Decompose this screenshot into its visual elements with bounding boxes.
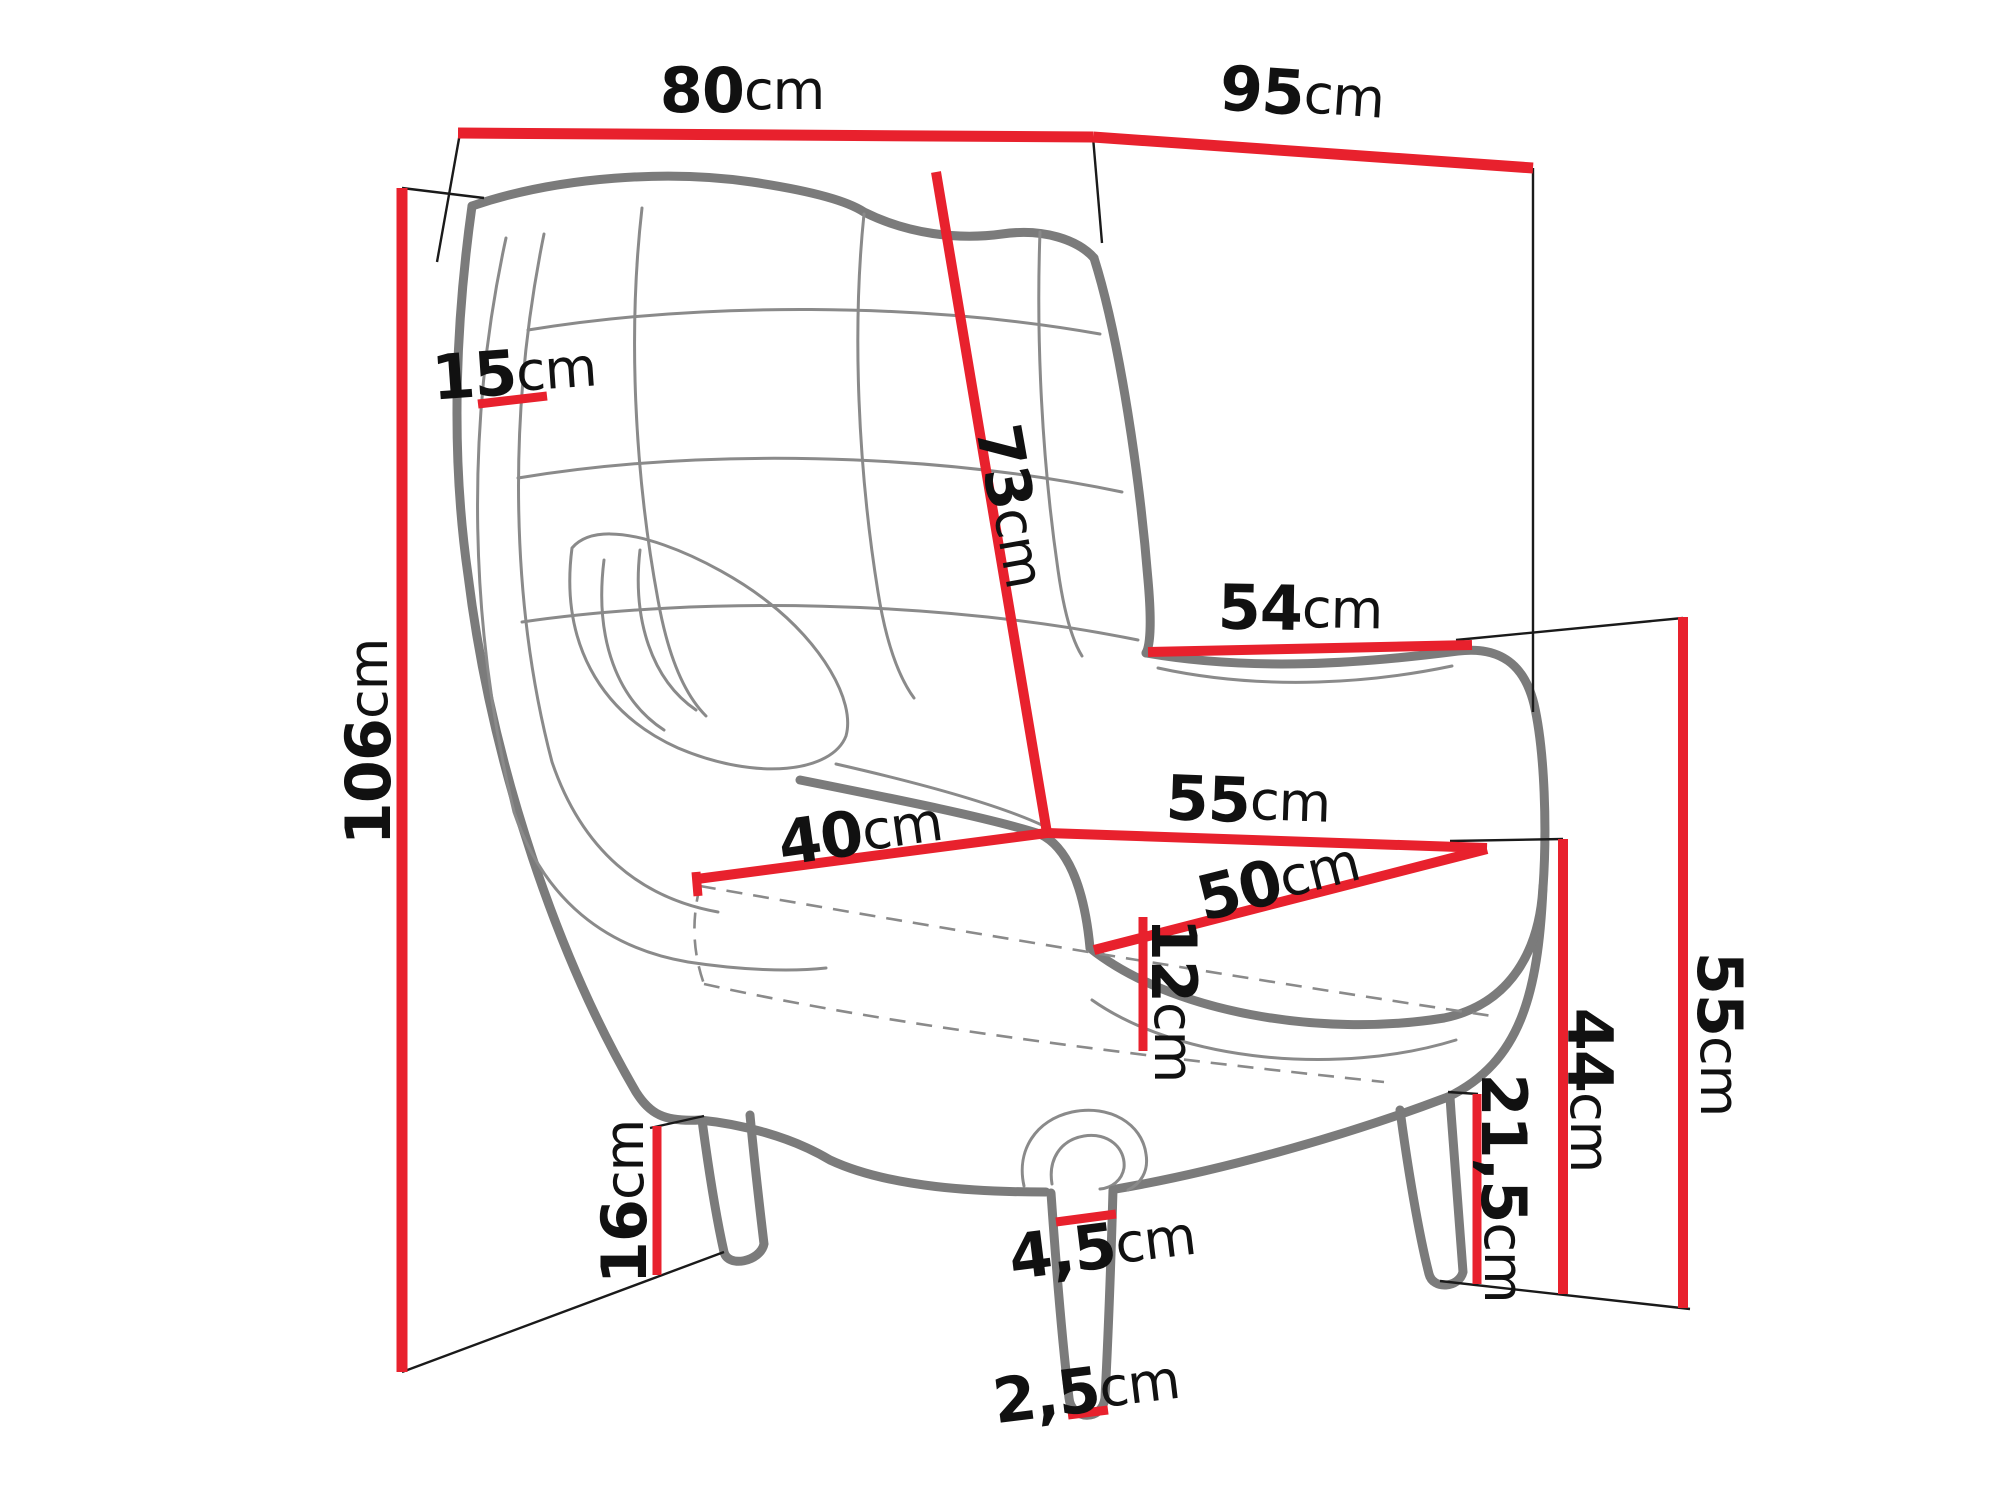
label-armrest-inner-length: 40cm [773, 784, 946, 879]
backrest-inner-seam-2 [519, 234, 718, 912]
extension-top-corner [1093, 137, 1102, 243]
leg-mount-swirl-inner [1051, 1135, 1124, 1189]
tufting-seam-horizontal-1 [528, 309, 1100, 334]
chair-outline-top [472, 176, 1094, 258]
extension-armrest-height-top [1456, 618, 1683, 640]
label-armrest-depth: 54cm [1217, 570, 1383, 646]
pillow-crease-2 [638, 550, 696, 710]
armrest-inner-seam [1158, 666, 1452, 682]
label-front-leg-top-width: 4,5cm [1005, 1198, 1200, 1293]
rear-right-leg [1400, 1097, 1463, 1285]
label-backrest-height: 73cm [962, 419, 1062, 594]
label-seat-width: 55cm [1164, 761, 1331, 840]
label-cushion-thickness: 12cm [1138, 918, 1211, 1083]
extension-total-height-top [402, 188, 484, 198]
chair-outline-backrest-right [1094, 258, 1150, 653]
label-backrest-thickness: 15cm [429, 330, 598, 414]
pillow-outline [570, 534, 848, 769]
label-base-clearance-height: 21,5cm [1468, 1073, 1541, 1302]
leg-mount-swirl-outer [1022, 1110, 1146, 1190]
label-rear-leg-height: 16cm [588, 1120, 661, 1285]
armchair-dimensions-diagram: 80cm 95cm 106cm 15cm 73cm 54cm 55cm 50cm… [0, 0, 2000, 1500]
floor-line-left [402, 1252, 724, 1372]
label-seat-height: 44cm [1554, 1008, 1627, 1173]
rear-left-leg [702, 1115, 764, 1261]
seat-corner [1040, 834, 1090, 948]
tufting-seam-vertical-2 [858, 214, 914, 698]
tufting-seam-vertical-3 [1039, 232, 1082, 656]
hidden-armrest-left-dashed [694, 886, 704, 984]
dimension-line-top-depth [1093, 137, 1533, 168]
dimension-line-top-width [458, 133, 1093, 137]
label-top-width: 80cm [660, 54, 825, 127]
label-armrest-height: 55cm [1684, 952, 1757, 1117]
label-total-height: 106cm [332, 639, 405, 846]
tufting-seam-horizontal-3 [522, 606, 1138, 640]
hidden-armrest-bottom-dashed [704, 984, 1384, 1082]
dimension-line-armrest-depth [1148, 645, 1472, 652]
extension-top-width-left [437, 133, 460, 262]
label-front-leg-bottom-width: 2,5cm [989, 1342, 1184, 1437]
dimension-line-armrest-inner-tick [696, 872, 698, 896]
label-top-depth: 95cm [1217, 51, 1386, 135]
